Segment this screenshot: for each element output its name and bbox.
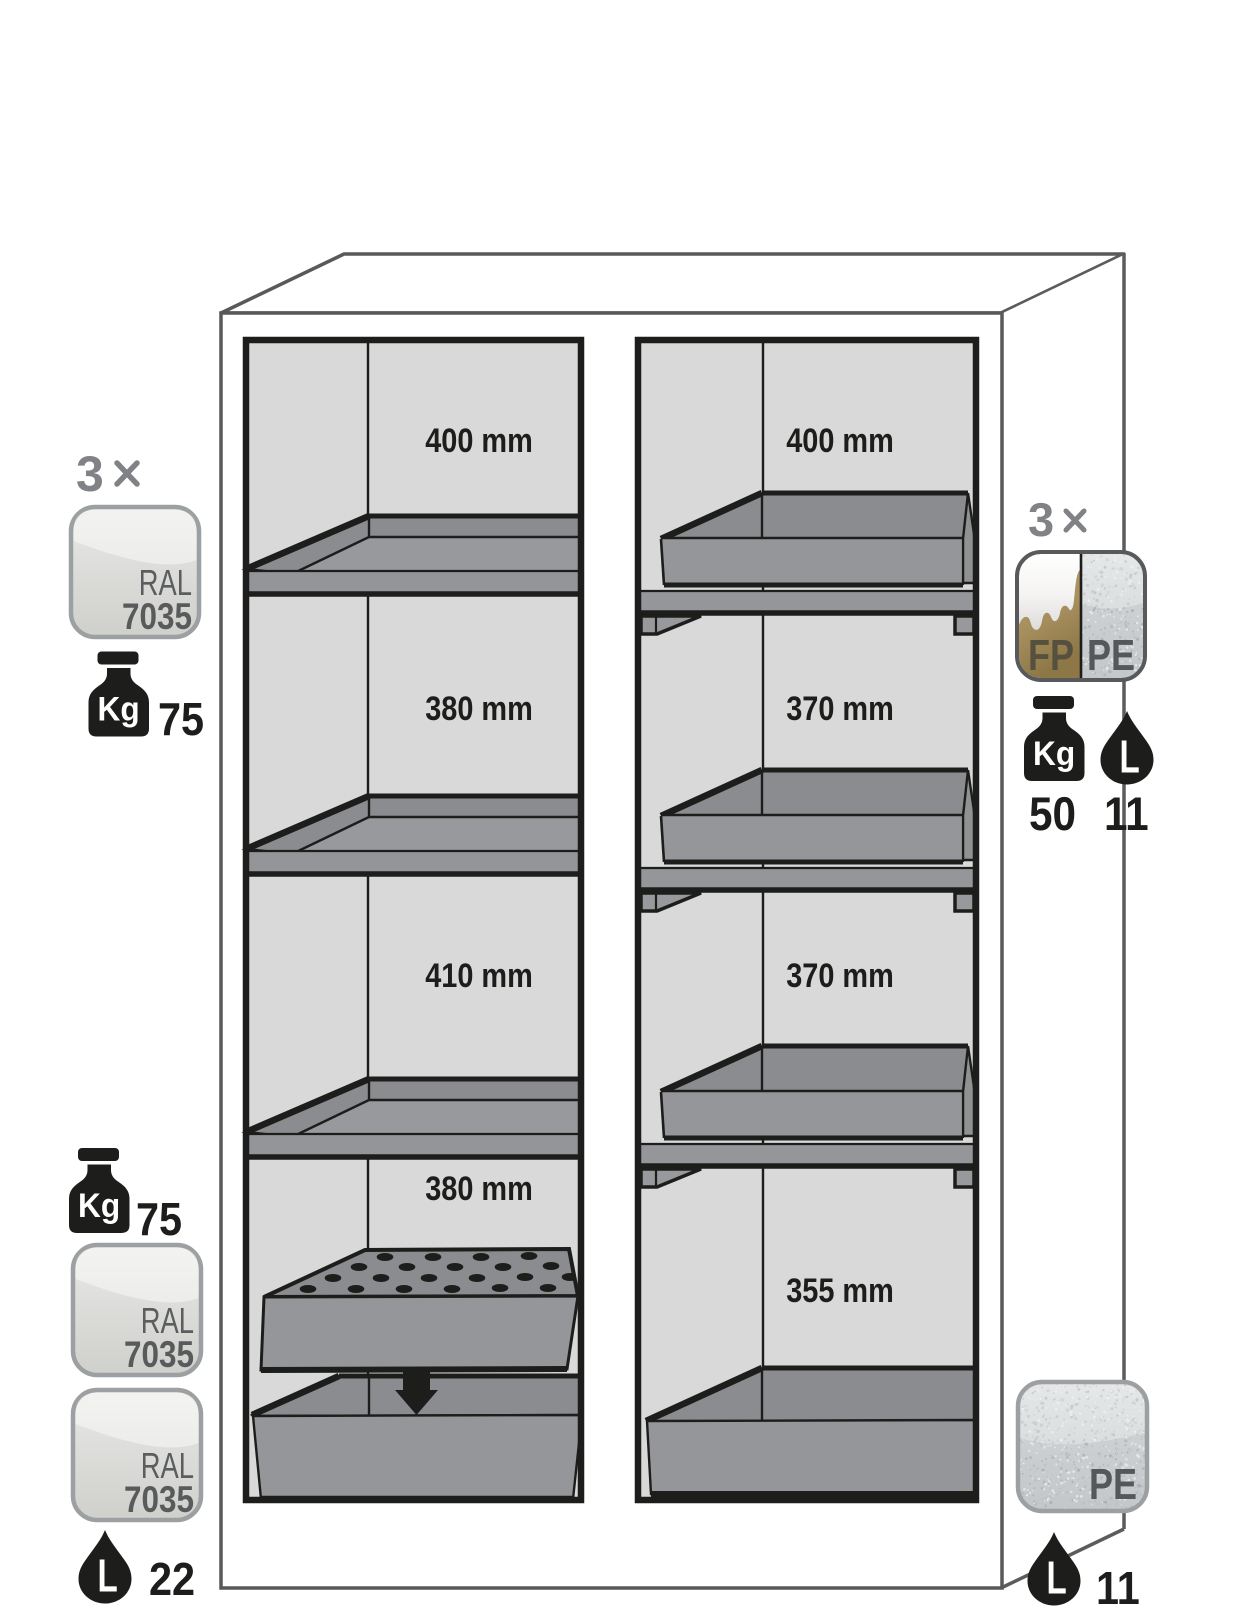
svg-text:75: 75 <box>136 1194 182 1246</box>
svg-text:355 mm: 355 mm <box>786 1271 894 1310</box>
svg-text:PE: PE <box>1087 631 1135 680</box>
svg-text:370 mm: 370 mm <box>786 956 894 995</box>
svg-text:400 mm: 400 mm <box>786 421 894 460</box>
svg-text:FP: FP <box>1028 631 1074 680</box>
svg-text:380 mm: 380 mm <box>425 689 533 728</box>
svg-text:50: 50 <box>1029 789 1076 841</box>
svg-text:3: 3 <box>76 446 104 502</box>
svg-text:380 mm: 380 mm <box>425 1169 533 1208</box>
svg-text:11: 11 <box>1104 789 1149 841</box>
svg-text:75: 75 <box>158 694 204 746</box>
svg-text:PE: PE <box>1089 1460 1137 1509</box>
svg-text:11: 11 <box>1096 1563 1140 1615</box>
svg-text:370 mm: 370 mm <box>786 689 894 728</box>
svg-text:410 mm: 410 mm <box>425 956 533 995</box>
svg-text:3: 3 <box>1028 493 1054 546</box>
svg-text:22: 22 <box>149 1554 195 1606</box>
svg-text:400 mm: 400 mm <box>425 421 533 460</box>
